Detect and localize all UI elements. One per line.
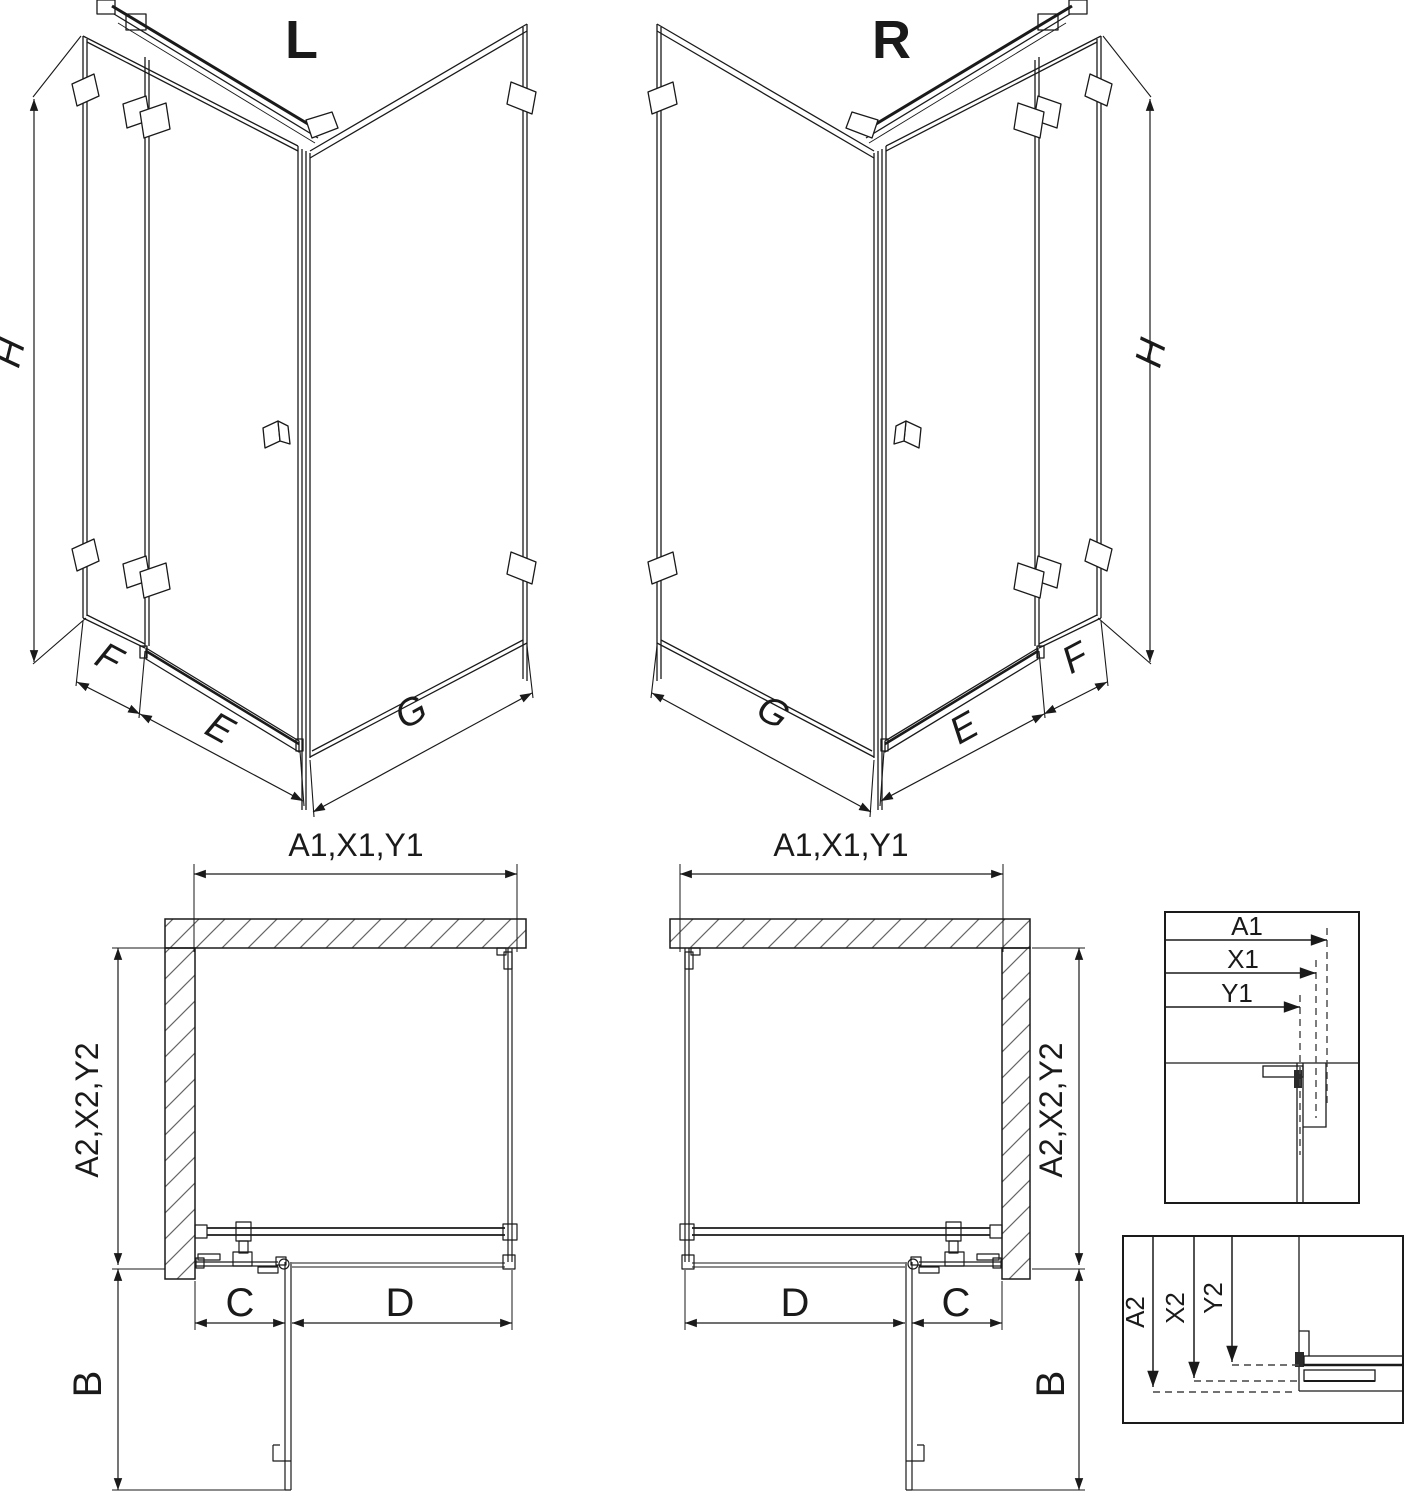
plan-view-left: A1,X1,Y1 A2,X2,Y2 C D B bbox=[66, 827, 526, 1490]
plan-right-door-label: D bbox=[781, 1281, 810, 1325]
iso-right-height-label: H bbox=[1128, 334, 1176, 371]
plan-left-depth-label: A2,X2,Y2 bbox=[69, 1042, 105, 1177]
plan-view-right: A1,X1,Y1 A2,X2,Y2 D C B bbox=[670, 827, 1085, 1490]
plan-left-fixed-label: C bbox=[226, 1281, 255, 1325]
plan-right-fixed-label: C bbox=[942, 1281, 971, 1325]
plan-left-swing-label: B bbox=[66, 1371, 110, 1398]
detail-y2-label: Y2 bbox=[1198, 1282, 1228, 1314]
plan-left-wall-side bbox=[165, 948, 195, 1279]
plan-right-wall-side bbox=[1002, 948, 1030, 1279]
detail-box-depth: A2 X2 Y2 bbox=[1120, 1236, 1403, 1423]
detail-a1-label: A1 bbox=[1231, 911, 1263, 941]
iso-left-height-label: H bbox=[0, 334, 34, 371]
iso-view-left: L H F E G bbox=[0, 0, 536, 817]
shower-enclosure-technical-drawing: L H F E G R H F E G A1,X1,Y1 A2,X2,Y2 C … bbox=[0, 0, 1416, 1499]
plan-left-wall-top bbox=[165, 919, 526, 948]
plan-right-width-label: A1,X1,Y1 bbox=[773, 827, 908, 863]
detail-a2-label: A2 bbox=[1120, 1296, 1150, 1328]
iso-left-geometry bbox=[33, 0, 536, 817]
iso-left-fixed-label: F bbox=[89, 634, 131, 683]
detail-x2-label: X2 bbox=[1160, 1292, 1190, 1324]
iso-right-title: R bbox=[872, 10, 911, 70]
detail-x1-label: X1 bbox=[1227, 944, 1259, 974]
plan-left-door-label: D bbox=[386, 1281, 415, 1325]
detail-y1-label: Y1 bbox=[1221, 978, 1253, 1008]
iso-right-geometry bbox=[648, 0, 1151, 817]
plan-right-swing-label: B bbox=[1029, 1371, 1073, 1398]
detail-box-width: A1 X1 Y1 bbox=[1165, 911, 1359, 1203]
iso-left-title: L bbox=[285, 10, 318, 70]
iso-view-right: R H F E G bbox=[648, 0, 1175, 817]
plan-right-depth-label: A2,X2,Y2 bbox=[1033, 1042, 1069, 1177]
technical-diagram-page: L H F E G R H F E G A1,X1,Y1 A2,X2,Y2 C … bbox=[0, 0, 1416, 1499]
iso-right-fixed-label: F bbox=[1055, 634, 1097, 683]
plan-left-width-label: A1,X1,Y1 bbox=[288, 827, 423, 863]
plan-right-wall-top bbox=[670, 919, 1030, 948]
